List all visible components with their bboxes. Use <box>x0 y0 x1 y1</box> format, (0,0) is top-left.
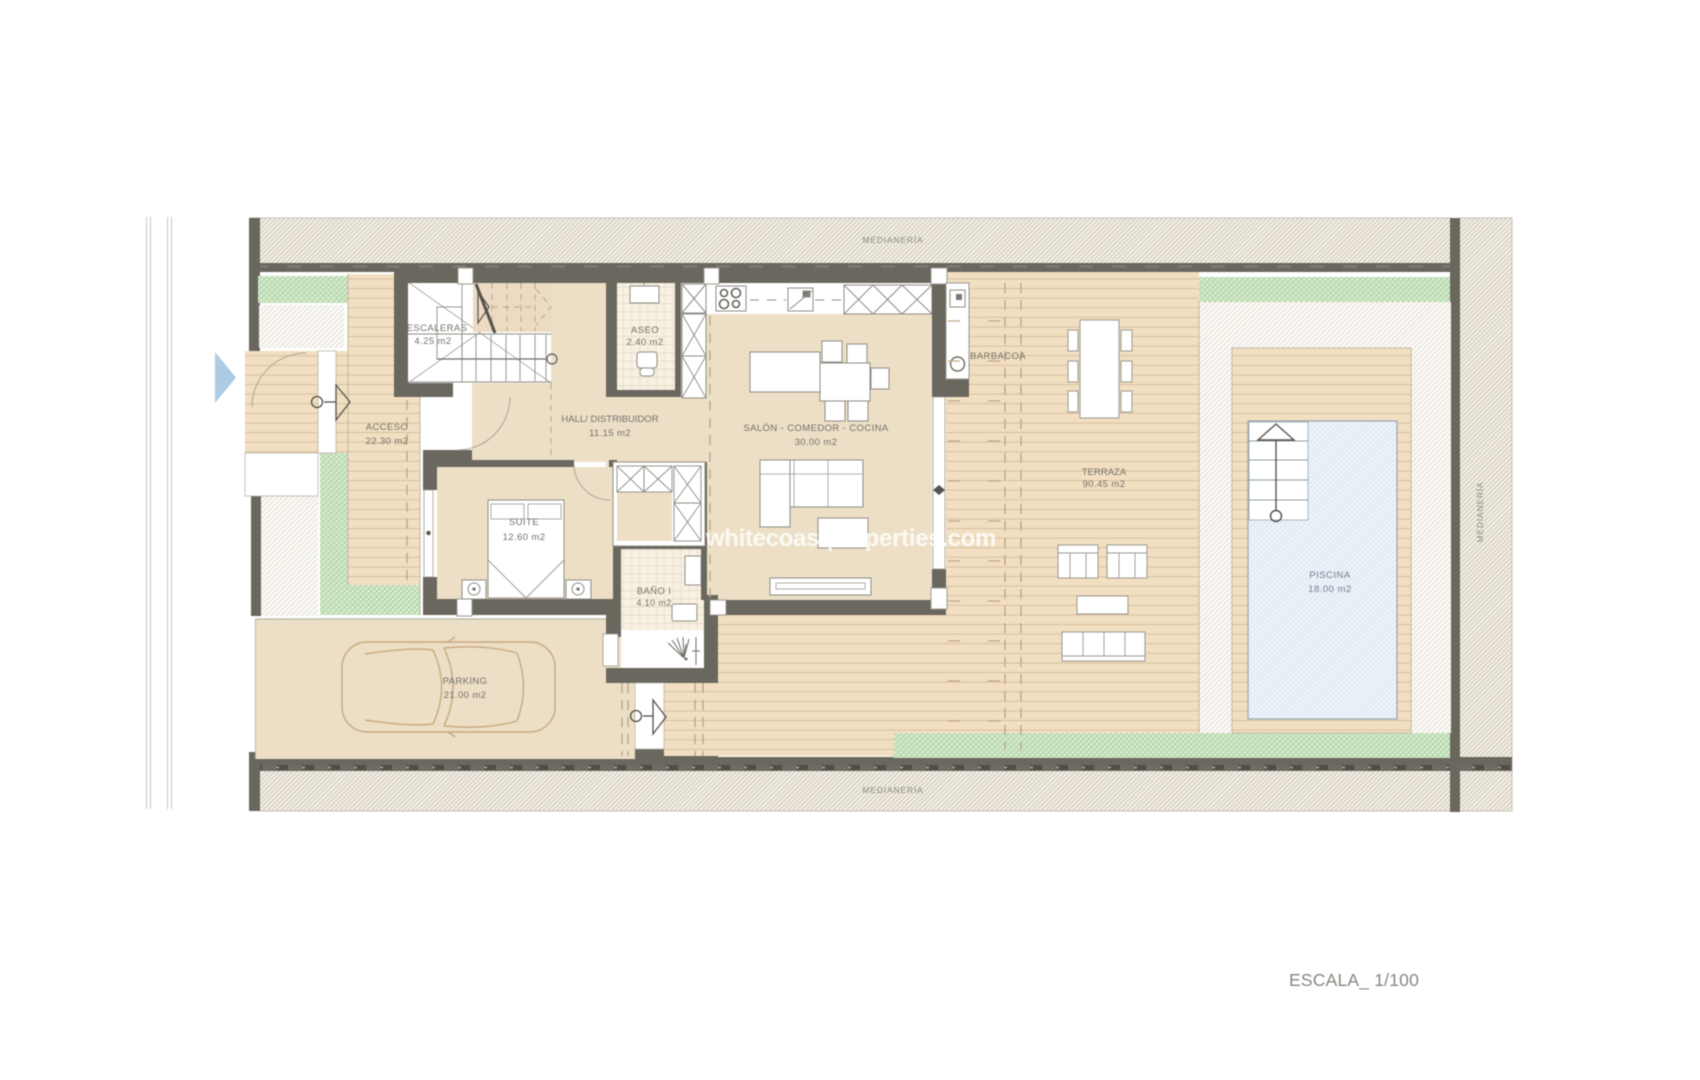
svg-text:12.60 m2: 12.60 m2 <box>503 532 546 543</box>
svg-text:TERRAZA: TERRAZA <box>1082 467 1127 478</box>
svg-text:21.00 m2: 21.00 m2 <box>444 690 487 701</box>
svg-text:ACCESO: ACCESO <box>366 422 409 433</box>
svg-text:4.10 m2: 4.10 m2 <box>636 598 671 608</box>
svg-text:SALÓN - COMEDOR - COCINA: SALÓN - COMEDOR - COCINA <box>743 423 889 434</box>
svg-text:SUITE: SUITE <box>509 517 539 528</box>
svg-text:ESCALA_ 1/100: ESCALA_ 1/100 <box>1289 970 1419 991</box>
svg-text:MEDIANERÍA: MEDIANERÍA <box>863 235 924 245</box>
svg-text:PISCINA: PISCINA <box>1309 570 1351 581</box>
svg-text:4.25 m2: 4.25 m2 <box>414 336 451 347</box>
svg-text:30.00 m2: 30.00 m2 <box>795 437 838 448</box>
svg-text:BAÑO I: BAÑO I <box>637 586 672 597</box>
svg-text:ESCALERAS: ESCALERAS <box>407 323 468 334</box>
svg-text:11.15 m2: 11.15 m2 <box>589 428 631 439</box>
svg-text:90.45 m2: 90.45 m2 <box>1083 479 1126 490</box>
svg-text:ASEO: ASEO <box>631 325 659 336</box>
svg-text:BARBACOA: BARBACOA <box>970 351 1026 362</box>
svg-text:MEDIANERÍA: MEDIANERÍA <box>1475 482 1485 543</box>
svg-text:PARKING: PARKING <box>443 676 488 687</box>
svg-text:18.00 m2: 18.00 m2 <box>1308 584 1352 595</box>
svg-text:whitecoastproperties.com: whitecoastproperties.com <box>705 525 996 552</box>
svg-text:MEDIANERÍA: MEDIANERÍA <box>863 785 924 795</box>
svg-text:2.40 m2: 2.40 m2 <box>626 337 663 348</box>
svg-text:HALL/ DISTRIBUIDOR: HALL/ DISTRIBUIDOR <box>561 414 658 425</box>
svg-text:22.30 m2: 22.30 m2 <box>366 436 409 447</box>
